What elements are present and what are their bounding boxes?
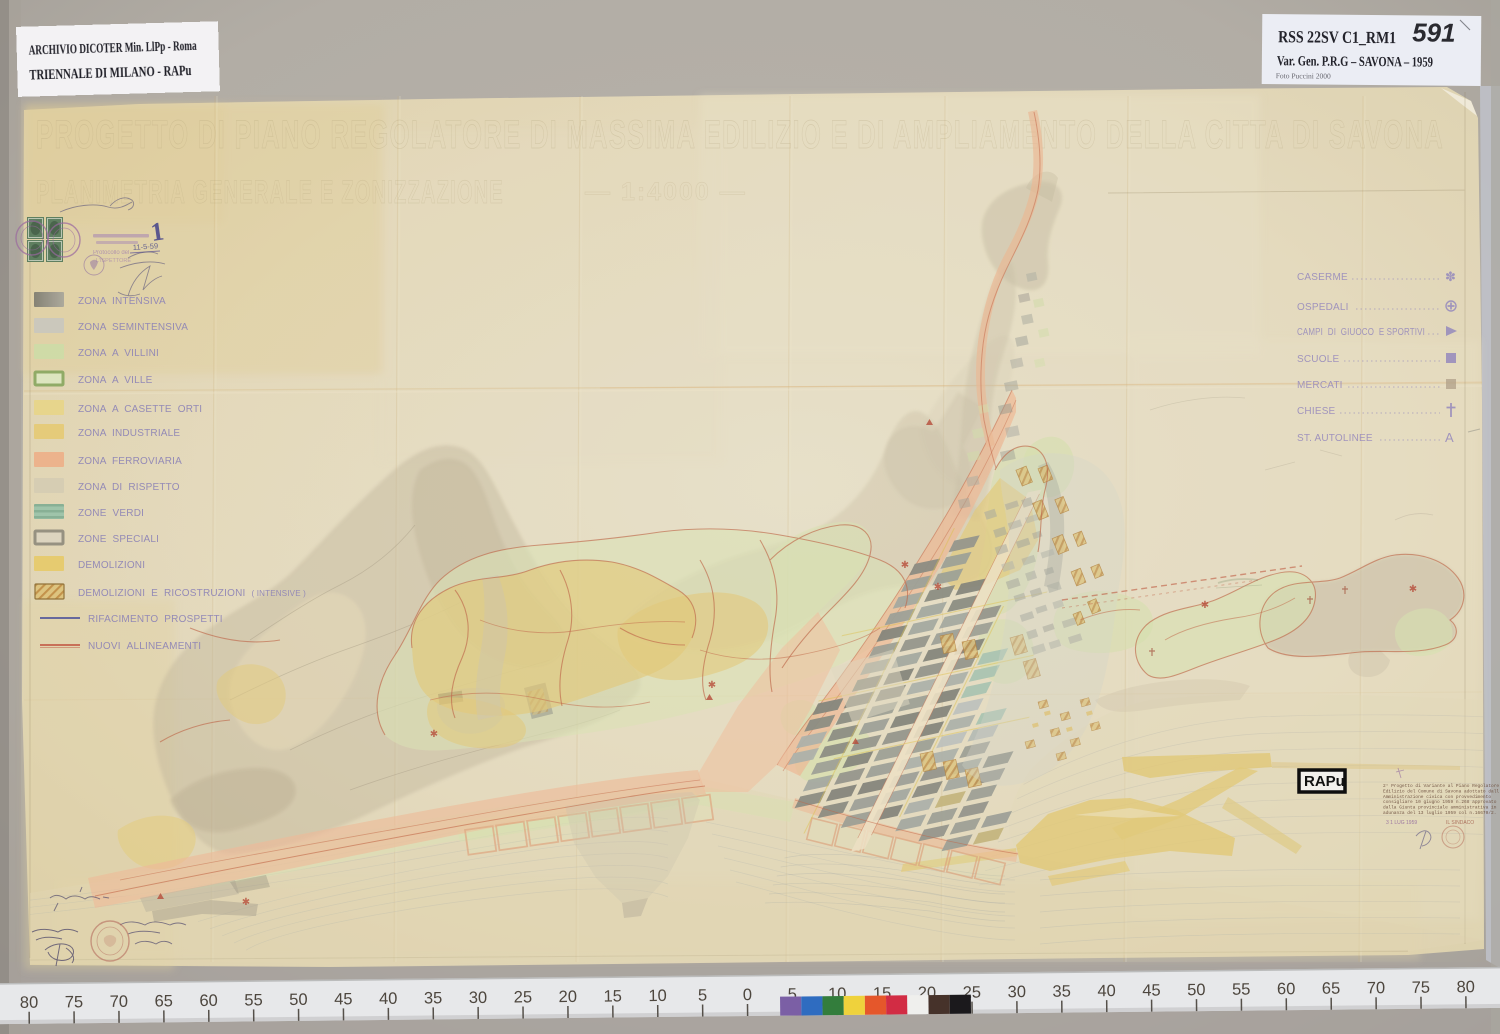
svg-text:RSS 22SV C1_RM1: RSS 22SV C1_RM1 <box>1278 27 1396 47</box>
svg-text:15: 15 <box>603 987 622 1005</box>
svg-text:✽: ✽ <box>1445 269 1456 284</box>
svg-text:MERCATI: MERCATI <box>1297 380 1343 391</box>
svg-text:25: 25 <box>514 988 533 1006</box>
svg-text:A: A <box>1445 430 1454 445</box>
svg-text:IL SINDACO: IL SINDACO <box>1446 820 1474 826</box>
svg-text:70: 70 <box>110 993 129 1011</box>
svg-text:65: 65 <box>1322 980 1341 998</box>
svg-text:ZONA INDUSTRIALE: ZONA INDUSTRIALE <box>78 428 180 439</box>
svg-text:Edilizio del Comune di Savona: Edilizio del Comune di Savona adottato d… <box>1383 788 1499 794</box>
svg-text:5: 5 <box>698 986 707 1004</box>
svg-text:NUOVI ALLINEAMENTI: NUOVI ALLINEAMENTI <box>88 641 201 652</box>
svg-text:80: 80 <box>1456 978 1475 996</box>
svg-text:3 1 LUG 1959: 3 1 LUG 1959 <box>1386 820 1417 826</box>
svg-text:2° Progetto di Variante al Pia: 2° Progetto di Variante al Piano Regolat… <box>1383 783 1499 789</box>
svg-text:10: 10 <box>648 987 667 1005</box>
svg-text:20: 20 <box>559 988 578 1006</box>
svg-text:40: 40 <box>379 990 398 1008</box>
svg-text:RIFACIMENTO PROSPETTI: RIFACIMENTO PROSPETTI <box>88 614 223 625</box>
svg-text:75: 75 <box>65 993 84 1011</box>
svg-text:ST. AUTOLINEE: ST. AUTOLINEE <box>1297 433 1373 444</box>
svg-text:70: 70 <box>1367 979 1386 997</box>
svg-text:RAPu: RAPu <box>1304 773 1345 790</box>
svg-text:50: 50 <box>289 991 308 1009</box>
svg-text:DEMOLIZIONI E RICOSTRUZIONI: DEMOLIZIONI E RICOSTRUZIONI ( INTENSIVE … <box>78 588 306 599</box>
svg-text:ZONA A VILLE: ZONA A VILLE <box>78 375 153 386</box>
svg-text:35: 35 <box>1052 983 1071 1001</box>
svg-text:ZONA SEMINTENSIVA: ZONA SEMINTENSIVA <box>78 322 188 333</box>
svg-text:40: 40 <box>1097 982 1116 1000</box>
svg-text:L’ISPETTORE: L’ISPETTORE <box>96 258 131 264</box>
svg-text:Protocollo del: Protocollo del <box>93 250 129 256</box>
svg-text:50: 50 <box>1187 981 1206 999</box>
svg-text:ZONE SPECIALI: ZONE SPECIALI <box>78 534 159 545</box>
svg-text:591: 591 <box>1412 17 1456 47</box>
svg-text:Var. Gen. P.R.G – SAVONA – 195: Var. Gen. P.R.G – SAVONA – 1959 <box>1277 54 1433 70</box>
svg-text:CAMPI DI GIUOCO E SPORTIVI: CAMPI DI GIUOCO E SPORTIVI <box>1297 327 1425 338</box>
svg-text:Amministrazione civica con pro: Amministrazione civica con provvedimento <box>1383 794 1491 800</box>
svg-text:30: 30 <box>469 989 488 1007</box>
svg-text:55: 55 <box>244 991 263 1009</box>
svg-text:60: 60 <box>1277 980 1296 998</box>
svg-text:adunanza del 13 luglio 1959 co: adunanza del 13 luglio 1959 col n.16670/… <box>1383 810 1496 816</box>
svg-text:ZONA FERROVIARIA: ZONA FERROVIARIA <box>78 456 182 467</box>
svg-text:0: 0 <box>743 986 752 1004</box>
svg-text:30: 30 <box>1008 983 1027 1001</box>
svg-text:OSPEDALI: OSPEDALI <box>1297 302 1349 313</box>
svg-text:60: 60 <box>199 992 218 1010</box>
svg-text:ZONA INTENSIVA: ZONA INTENSIVA <box>78 296 166 307</box>
svg-text:dalla Giunta provinciale ammin: dalla Giunta provinciale amministrativa … <box>1383 805 1497 811</box>
svg-text:45: 45 <box>334 990 353 1008</box>
svg-text:Foto Puccini 2000: Foto Puccini 2000 <box>1276 71 1331 80</box>
svg-text:80: 80 <box>20 994 39 1012</box>
svg-text:35: 35 <box>424 989 443 1007</box>
svg-text:ZONE VERDI: ZONE VERDI <box>78 508 144 519</box>
svg-text:ZONA A CASETTE ORTI: ZONA A CASETTE ORTI <box>78 404 202 415</box>
svg-text:ZONA A VILLINI: ZONA A VILLINI <box>78 348 159 359</box>
svg-text:75: 75 <box>1412 979 1431 997</box>
svg-text:45: 45 <box>1142 982 1161 1000</box>
svg-text:CHIESE: CHIESE <box>1297 406 1336 417</box>
svg-text:SCUOLE: SCUOLE <box>1297 354 1339 365</box>
svg-text:CASERME: CASERME <box>1297 272 1348 283</box>
svg-text:55: 55 <box>1232 981 1251 999</box>
svg-text:DEMOLIZIONI: DEMOLIZIONI <box>78 560 145 571</box>
svg-text:65: 65 <box>154 992 173 1010</box>
svg-text:ZONA DI RISPETTO: ZONA DI RISPETTO <box>78 482 180 493</box>
svg-text:consigliare 10 giugno 1959 n.2: consigliare 10 giugno 1959 n.268 approva… <box>1383 799 1497 805</box>
